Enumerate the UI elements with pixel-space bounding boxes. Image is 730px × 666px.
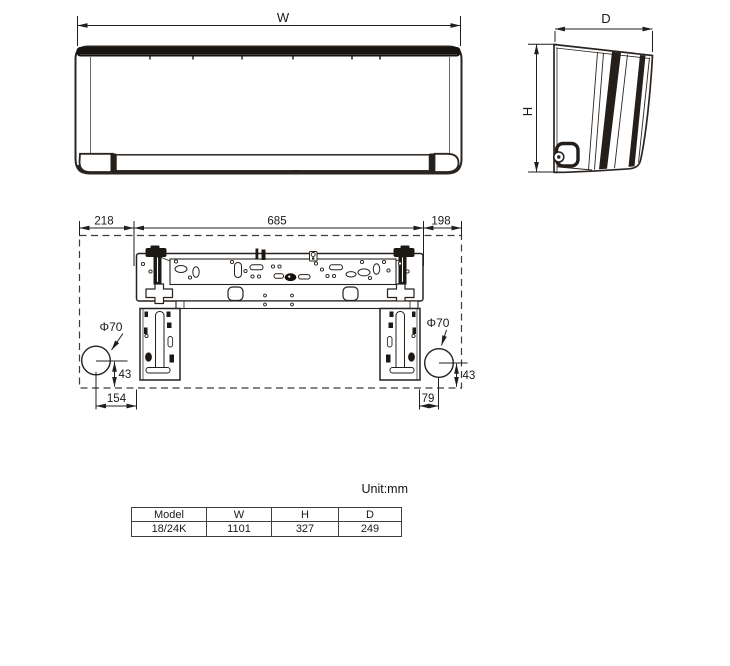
dim-218: 218 [94, 216, 113, 228]
header-h: H [272, 508, 339, 522]
unit-label: Unit:mm [258, 482, 408, 496]
header-w: W [207, 508, 272, 522]
cell-h: 327 [272, 522, 339, 537]
plate-leg [140, 309, 180, 381]
dim-685: 685 [267, 216, 286, 228]
header-model: Model [132, 508, 207, 522]
mounting-view: 218 685 198 [80, 216, 476, 410]
air-outlet-louver [80, 154, 459, 173]
side-depth-label: D [601, 11, 610, 26]
plate-leg-right [380, 309, 420, 381]
header-d: D [339, 508, 402, 522]
phi70-label-left: Φ70 [100, 320, 123, 334]
cell-w: 1101 [207, 522, 272, 537]
plate-bottom-strip [176, 301, 418, 309]
phi70-label-right: Φ70 [427, 316, 450, 330]
side-view: D H [520, 11, 653, 172]
front-view: W [76, 10, 462, 174]
spec-table-data-row: 18/24K 1101 327 249 [132, 522, 402, 537]
mounting-plate [137, 246, 424, 381]
anchor-hole-filled [285, 273, 297, 281]
spec-table-header-row: Model W H D [132, 508, 402, 522]
technical-drawing: W [0, 0, 730, 666]
indoor-unit-front [76, 47, 462, 174]
dim-198: 198 [431, 216, 450, 228]
top-grille [77, 47, 461, 57]
dim-w [78, 16, 461, 46]
dim-154-label: 154 [107, 393, 127, 405]
dim-79-label: 79 [422, 393, 435, 405]
dim-43-right-label: 43 [463, 370, 476, 382]
screw-mark [310, 252, 318, 262]
indoor-unit-side [554, 45, 653, 173]
dim-43-left-label: 43 [119, 369, 132, 381]
cell-model: 18/24K [132, 522, 207, 537]
spec-table: Model W H D 18/24K 1101 327 249 [131, 507, 402, 537]
side-height-label: H [520, 107, 535, 116]
cell-d: 249 [339, 522, 402, 537]
dimension-drawing-page: W [0, 0, 730, 666]
front-width-label: W [277, 10, 290, 25]
